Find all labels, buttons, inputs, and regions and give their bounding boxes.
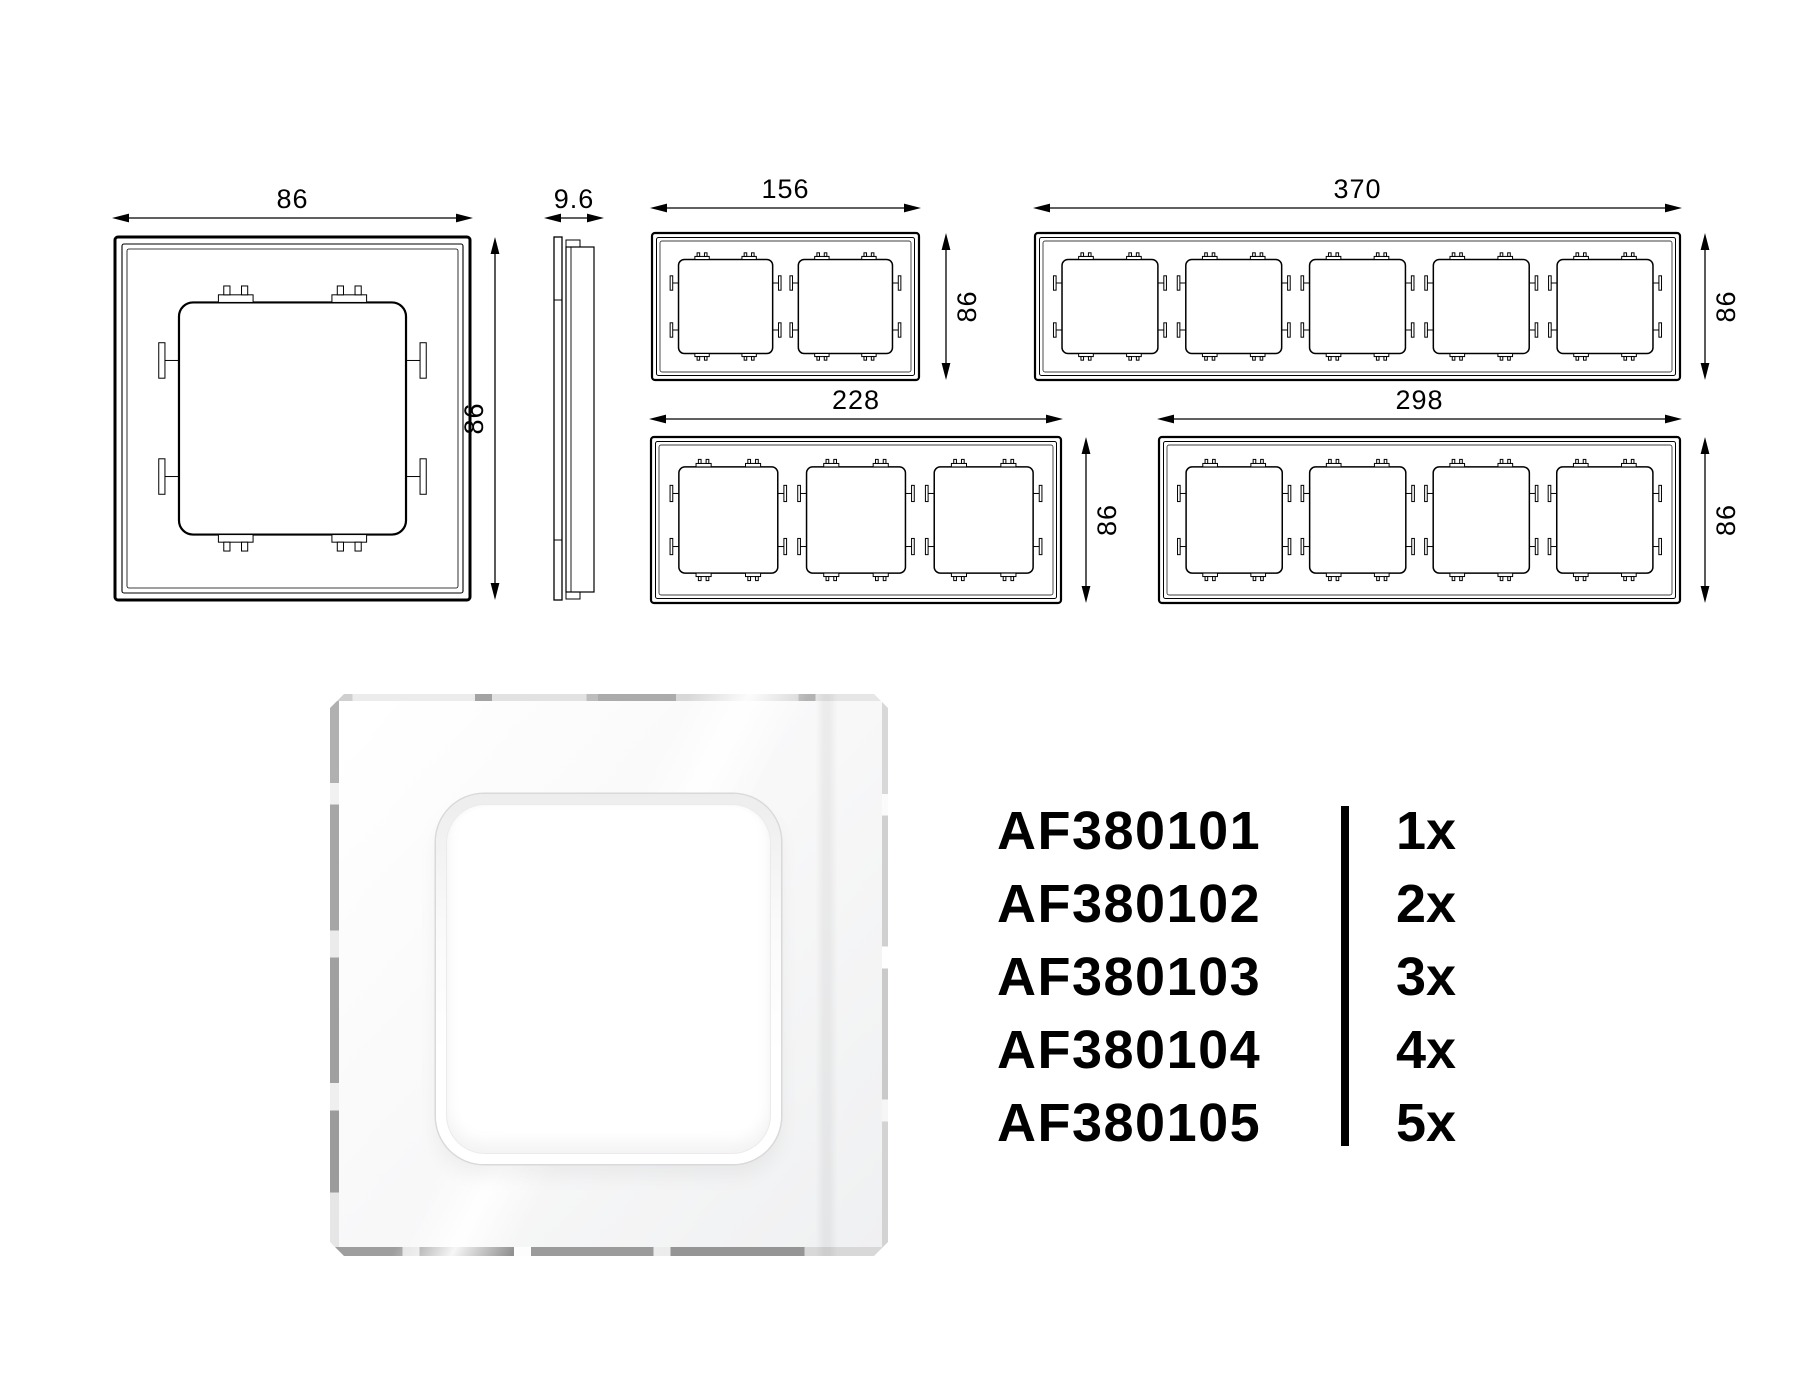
svg-text:228: 228 bbox=[832, 385, 880, 415]
svg-text:298: 298 bbox=[1395, 385, 1443, 415]
product-qty: 3x bbox=[1368, 941, 1484, 1014]
svg-text:86: 86 bbox=[1711, 290, 1741, 322]
drawing-frame-2-gang: 15686 bbox=[650, 174, 982, 380]
drawing-frame-4-gang: 29886 bbox=[1157, 385, 1741, 603]
drawing-side-profile: 9.6 bbox=[544, 184, 604, 600]
technical-drawings: 86869.615686370862288629886 bbox=[0, 0, 1800, 1400]
svg-text:86: 86 bbox=[1711, 504, 1741, 536]
svg-text:370: 370 bbox=[1333, 174, 1381, 204]
svg-text:156: 156 bbox=[761, 174, 809, 204]
frame-window-opening bbox=[447, 805, 770, 1153]
svg-text:86: 86 bbox=[952, 290, 982, 322]
product-code: AF380104 bbox=[997, 1014, 1261, 1087]
product-qty: 2x bbox=[1368, 868, 1484, 941]
product-qty: 4x bbox=[1368, 1014, 1484, 1087]
product-qty-column: 1x2x3x4x5x bbox=[1368, 795, 1484, 1160]
product-list-divider bbox=[1341, 806, 1349, 1146]
drawing-frame-5-gang: 37086 bbox=[1033, 174, 1741, 380]
product-code: AF380105 bbox=[997, 1087, 1261, 1160]
datasheet-page: 86869.615686370862288629886 AF380101AF38… bbox=[0, 0, 1800, 1400]
product-code: AF380102 bbox=[997, 868, 1261, 941]
drawing-frame-1-gang-front: 8686 bbox=[112, 184, 499, 600]
product-code-column: AF380101AF380102AF380103AF380104AF380105 bbox=[997, 795, 1261, 1160]
svg-text:86: 86 bbox=[459, 402, 489, 434]
product-code: AF380103 bbox=[997, 941, 1261, 1014]
frame-window-ring bbox=[436, 794, 781, 1164]
svg-text:9.6: 9.6 bbox=[554, 184, 595, 214]
product-qty: 1x bbox=[1368, 795, 1484, 868]
product-photo-single-frame bbox=[330, 694, 888, 1256]
product-code: AF380101 bbox=[997, 795, 1261, 868]
drawing-frame-3-gang: 22886 bbox=[649, 385, 1122, 603]
svg-text:86: 86 bbox=[1092, 504, 1122, 536]
product-qty: 5x bbox=[1368, 1087, 1484, 1160]
svg-text:86: 86 bbox=[276, 184, 308, 214]
